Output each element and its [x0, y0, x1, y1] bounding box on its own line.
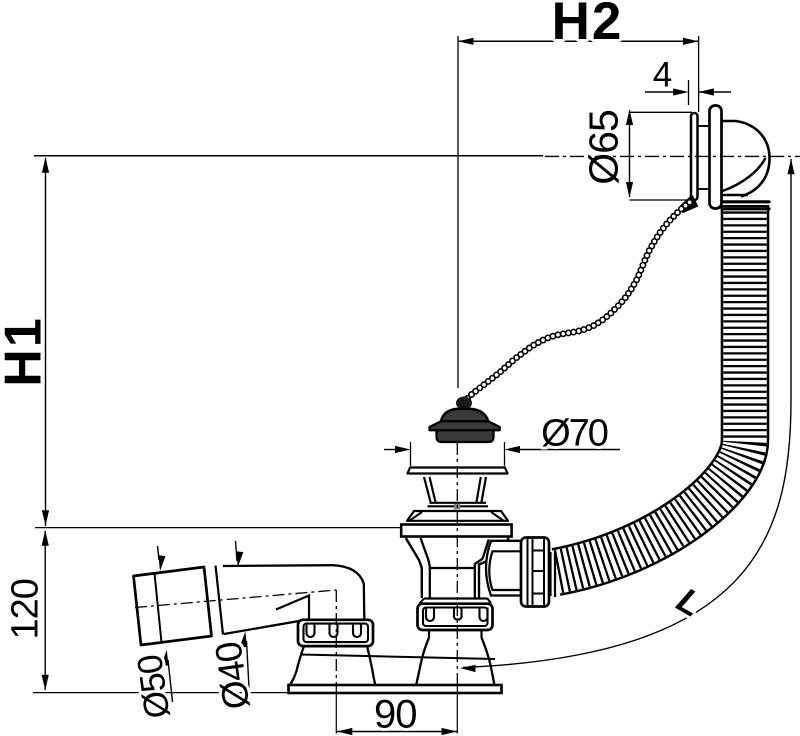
- svg-text:Ø65: Ø65: [581, 110, 627, 185]
- svg-text:120: 120: [4, 579, 46, 639]
- svg-text:Ø40: Ø40: [207, 639, 257, 711]
- svg-text:Ø50: Ø50: [130, 652, 177, 720]
- svg-text:90: 90: [374, 693, 417, 736]
- svg-text:H1: H1: [0, 316, 53, 386]
- svg-text:4: 4: [653, 56, 672, 95]
- svg-text:Ø70: Ø70: [541, 412, 608, 454]
- svg-text:H2: H2: [552, 0, 624, 51]
- svg-text:L: L: [670, 580, 708, 624]
